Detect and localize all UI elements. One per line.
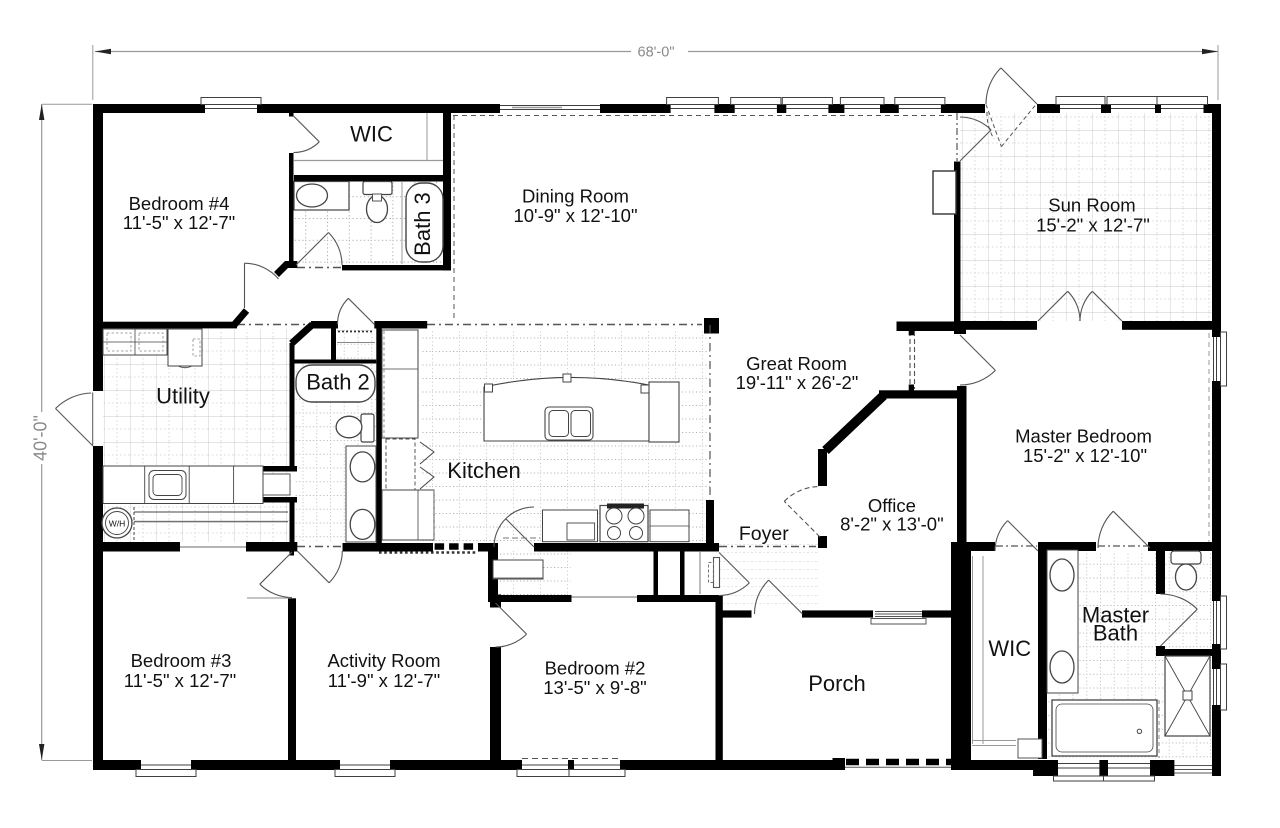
svg-text:Kitchen: Kitchen bbox=[447, 458, 520, 483]
svg-text:W/H: W/H bbox=[109, 519, 126, 529]
svg-text:Bedroom #4: Bedroom #4 bbox=[129, 193, 230, 214]
svg-text:Bedroom #2: Bedroom #2 bbox=[545, 658, 646, 679]
svg-text:11'-9" x 12'-7": 11'-9" x 12'-7" bbox=[328, 670, 440, 691]
svg-text:WIC: WIC bbox=[350, 122, 393, 147]
svg-text:Activity Room: Activity Room bbox=[327, 650, 440, 671]
svg-text:Master Bedroom: Master Bedroom bbox=[1015, 426, 1152, 447]
svg-text:19'-11" x 26'-2": 19'-11" x 26'-2" bbox=[736, 372, 859, 393]
svg-text:11'-5" x 12'-7": 11'-5" x 12'-7" bbox=[123, 212, 235, 233]
svg-text:Bath: Bath bbox=[1093, 621, 1138, 646]
svg-text:Sun Room: Sun Room bbox=[1048, 195, 1135, 216]
svg-text:Utility: Utility bbox=[156, 384, 210, 409]
svg-text:13'-5" x 9'-8": 13'-5" x 9'-8" bbox=[543, 677, 647, 698]
svg-text:Great Room: Great Room bbox=[746, 353, 847, 374]
svg-text:15'-2" x 12'-7": 15'-2" x 12'-7" bbox=[1036, 215, 1150, 236]
svg-text:Bath 2: Bath 2 bbox=[306, 370, 370, 395]
svg-text:Bedroom #3: Bedroom #3 bbox=[131, 650, 232, 671]
svg-text:8'-2" x 13'-0": 8'-2" x 13'-0" bbox=[840, 514, 944, 535]
svg-text:WIC: WIC bbox=[988, 636, 1031, 661]
svg-text:10'-9" x 12'-10": 10'-9" x 12'-10" bbox=[513, 205, 637, 226]
svg-text:68'-0": 68'-0" bbox=[638, 45, 675, 61]
svg-text:Bath 3: Bath 3 bbox=[410, 192, 435, 256]
svg-text:Foyer: Foyer bbox=[739, 523, 789, 545]
svg-text:Porch: Porch bbox=[808, 671, 865, 696]
svg-text:40'-0": 40'-0" bbox=[30, 415, 50, 461]
svg-text:15'-2" x 12'-10": 15'-2" x 12'-10" bbox=[1023, 445, 1147, 466]
svg-text:11'-5" x 12'-7": 11'-5" x 12'-7" bbox=[124, 670, 236, 691]
svg-text:Dining Room: Dining Room bbox=[522, 186, 629, 207]
